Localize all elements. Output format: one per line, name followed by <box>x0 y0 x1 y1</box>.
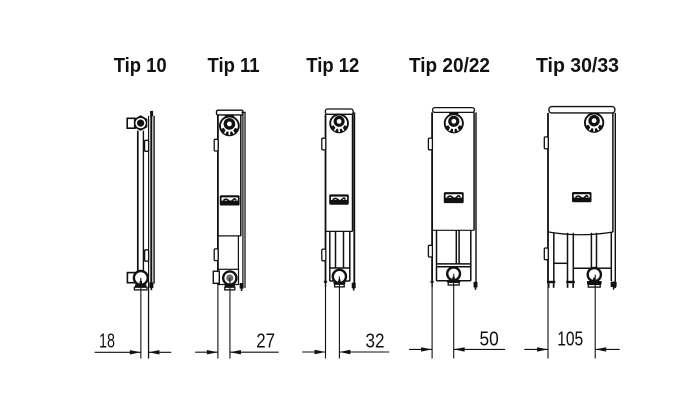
svg-text:Tip 11: Tip 11 <box>208 54 260 77</box>
svg-text:Tip 20/22: Tip 20/22 <box>409 54 490 77</box>
svg-text:18: 18 <box>99 330 115 353</box>
svg-text:Tip 10: Tip 10 <box>114 54 167 77</box>
svg-text:27: 27 <box>256 330 275 353</box>
svg-text:Tip 30/33: Tip 30/33 <box>536 54 619 77</box>
svg-text:50: 50 <box>480 327 499 350</box>
svg-text:Tip 12: Tip 12 <box>306 54 359 77</box>
svg-text:32: 32 <box>366 330 385 353</box>
svg-text:105: 105 <box>557 327 583 350</box>
